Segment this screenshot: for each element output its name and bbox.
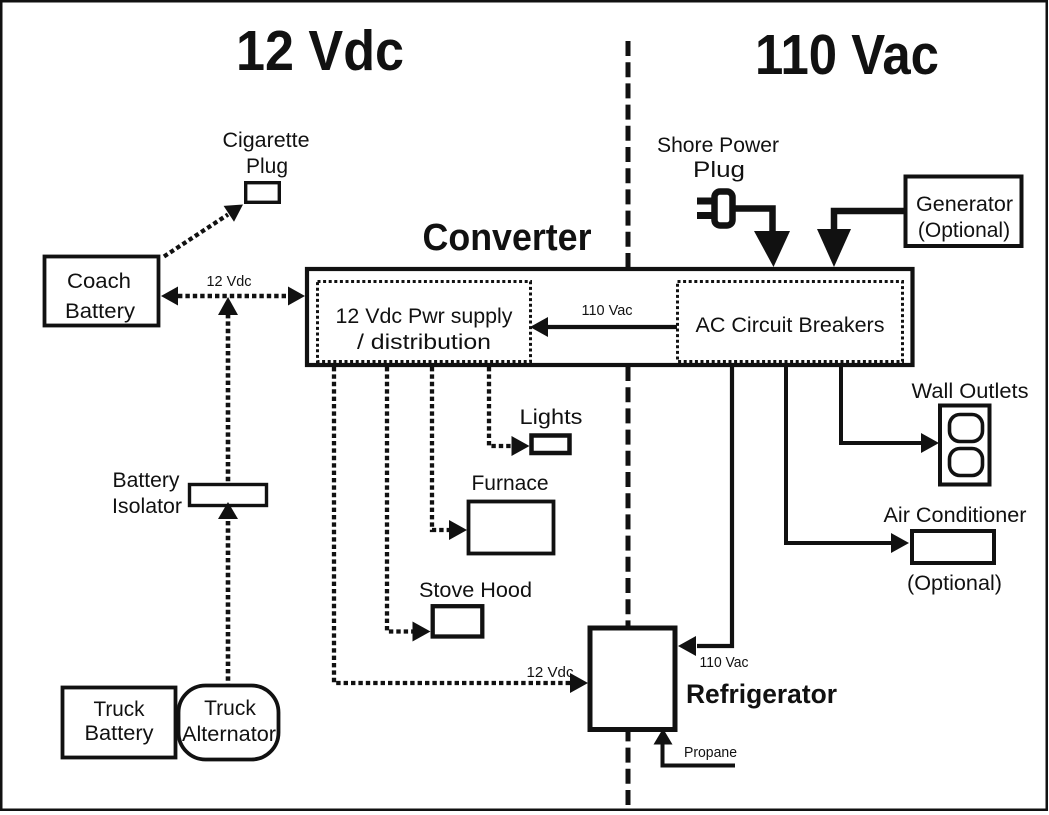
svg-text:110 Vac: 110 Vac <box>700 654 749 671</box>
svg-text:Battery: Battery <box>85 722 155 745</box>
svg-text:Refrigerator: Refrigerator <box>686 679 837 709</box>
svg-text:(Optional): (Optional) <box>907 572 1002 595</box>
svg-text:110 Vac: 110 Vac <box>755 23 939 87</box>
svg-text:Generator: Generator <box>916 193 1013 216</box>
svg-text:Furnace: Furnace <box>471 472 548 495</box>
svg-text:Alternator: Alternator <box>182 723 276 746</box>
svg-text:110 Vac: 110 Vac <box>582 302 633 319</box>
svg-text:12 Vdc: 12 Vdc <box>527 664 574 681</box>
svg-text:Converter: Converter <box>423 217 592 259</box>
svg-text:Plug: Plug <box>246 155 288 178</box>
svg-text:Truck: Truck <box>94 698 145 721</box>
svg-text:AC Circuit Breakers: AC Circuit Breakers <box>696 314 885 337</box>
svg-text:/ distribution: / distribution <box>357 331 491 354</box>
svg-text:12 Vdc: 12 Vdc <box>207 273 252 290</box>
svg-text:Stove Hood: Stove Hood <box>419 579 532 602</box>
svg-text:Coach: Coach <box>67 270 131 293</box>
svg-text:Shore Power: Shore Power <box>657 134 779 157</box>
svg-text:Propane: Propane <box>684 744 737 761</box>
svg-text:Lights: Lights <box>520 406 583 429</box>
svg-text:12 Vdc Pwr supply: 12 Vdc Pwr supply <box>336 305 514 328</box>
svg-text:Truck: Truck <box>204 697 256 720</box>
svg-text:(Optional): (Optional) <box>918 219 1010 242</box>
svg-text:Plug: Plug <box>693 157 745 182</box>
svg-text:Battery: Battery <box>65 300 136 323</box>
svg-text:Isolator: Isolator <box>112 495 182 518</box>
svg-text:Cigarette: Cigarette <box>223 129 310 152</box>
svg-text:Wall Outlets: Wall Outlets <box>912 380 1029 403</box>
svg-text:Battery: Battery <box>113 469 180 492</box>
svg-text:12 Vdc: 12 Vdc <box>236 19 404 83</box>
svg-text:Air Conditioner: Air Conditioner <box>884 504 1027 527</box>
